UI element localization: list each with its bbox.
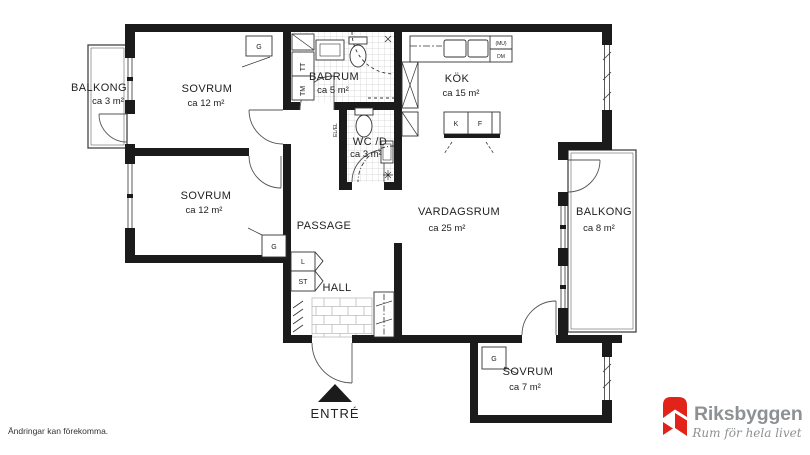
area-label-sovrum-2: ca 12 m² bbox=[186, 205, 223, 216]
freezer-label: F bbox=[478, 121, 482, 128]
window bbox=[559, 206, 567, 248]
badrum-toilet-cistern bbox=[349, 37, 367, 44]
sovrum1-door bbox=[249, 110, 283, 144]
window bbox=[126, 164, 134, 228]
washer-label: TM bbox=[300, 86, 307, 96]
window bbox=[603, 357, 611, 400]
sovrum3-door bbox=[522, 301, 556, 335]
room-label-sovrum-2: SOVRUM bbox=[181, 190, 232, 202]
kitchen-sink-right bbox=[468, 40, 488, 57]
disclaimer-text: Ändringar kan förekomma. bbox=[8, 426, 108, 436]
room-label-passage: PASSAGE bbox=[297, 220, 352, 232]
microwave-label: (MU) bbox=[495, 41, 506, 47]
room-label-balkong-left: BALKONG bbox=[71, 82, 127, 94]
window bbox=[126, 58, 134, 100]
logo-fold-left bbox=[663, 422, 673, 435]
closet-st-label: ST bbox=[299, 279, 309, 286]
closet-g1-pointer bbox=[242, 57, 270, 67]
window bbox=[603, 45, 611, 110]
sovrum2-door bbox=[249, 156, 281, 188]
entry-door bbox=[312, 343, 352, 383]
badrum-sink-bowl bbox=[320, 44, 340, 56]
balcony-right-outline bbox=[568, 150, 636, 332]
dishwasher-label: DM bbox=[497, 54, 505, 60]
area-label-sovrum-3: ca 7 m² bbox=[509, 382, 541, 393]
kitchen-sink-left bbox=[444, 40, 466, 57]
tall-cabinet-cross bbox=[402, 62, 418, 108]
area-label-balkong-left: ca 3 m² bbox=[92, 96, 124, 107]
floor-plan-drawing: BALKONG ca 3 m² SOVRUM ca 12 m² BADRUM c… bbox=[0, 0, 810, 455]
closet-g2-label: G bbox=[271, 244, 276, 251]
fridge-door-swing bbox=[444, 142, 494, 154]
area-label-sovrum-1: ca 12 m² bbox=[188, 98, 225, 109]
entry-label: ENTRÉ bbox=[310, 406, 359, 421]
closet-g2-pointer bbox=[248, 228, 262, 235]
wardrobe-rail-hatch bbox=[293, 301, 303, 332]
badrum-toilet bbox=[350, 45, 366, 67]
room-label-badrum: BADRUM bbox=[309, 71, 359, 83]
fridge-freezer-base bbox=[444, 134, 500, 138]
brand-tagline: Rum för hela livet bbox=[691, 426, 801, 440]
room-label-balkong-right: BALKONG bbox=[576, 206, 632, 218]
room-label-kok: KÖK bbox=[445, 73, 470, 85]
area-label-badrum: ca 5 m² bbox=[317, 85, 349, 96]
area-label-balkong-right: ca 8 m² bbox=[583, 223, 615, 234]
area-label-kok: ca 15 m² bbox=[443, 88, 480, 99]
brand-name: Riksbyggen bbox=[694, 403, 803, 425]
dryer-label: TT bbox=[300, 62, 307, 71]
area-label-vardagsrum: ca 25 m² bbox=[429, 223, 466, 234]
floor-plan-page: BALKONG ca 3 m² SOVRUM ca 12 m² BADRUM c… bbox=[0, 0, 810, 455]
room-label-sovrum-1: SOVRUM bbox=[182, 83, 233, 95]
closet-l-label: L bbox=[301, 259, 305, 266]
balcony-right-inner bbox=[571, 153, 633, 329]
balcony-right-door bbox=[568, 160, 600, 192]
closet-g3-label: G bbox=[491, 356, 496, 363]
riksbyggen-logo: Riksbyggen Rum för hela livet bbox=[663, 397, 803, 440]
room-label-sovrum-3: SOVRUM bbox=[503, 366, 554, 378]
room-label-wc-d: WC /D bbox=[353, 136, 387, 148]
wc-toilet-cistern bbox=[355, 108, 373, 115]
hall-entry-floor bbox=[312, 298, 372, 337]
window bbox=[559, 266, 567, 308]
electrical-panel-label: EL/EL bbox=[333, 123, 339, 137]
low-cabinet-diagonal bbox=[402, 112, 418, 136]
room-label-vardagsrum: VARDAGSRUM bbox=[418, 206, 500, 218]
wc-toilet bbox=[356, 115, 372, 137]
closet-g1-label: G bbox=[256, 44, 261, 51]
entry-arrow bbox=[318, 384, 352, 402]
room-label-hall: HALL bbox=[322, 282, 351, 294]
riksbyggen-logo-mark bbox=[663, 397, 687, 436]
fridge-label: K bbox=[454, 121, 459, 128]
area-label-wc-d: ca 3 m² bbox=[350, 149, 382, 160]
logo-fold-right bbox=[675, 413, 687, 436]
balcony-left-door bbox=[99, 114, 127, 142]
